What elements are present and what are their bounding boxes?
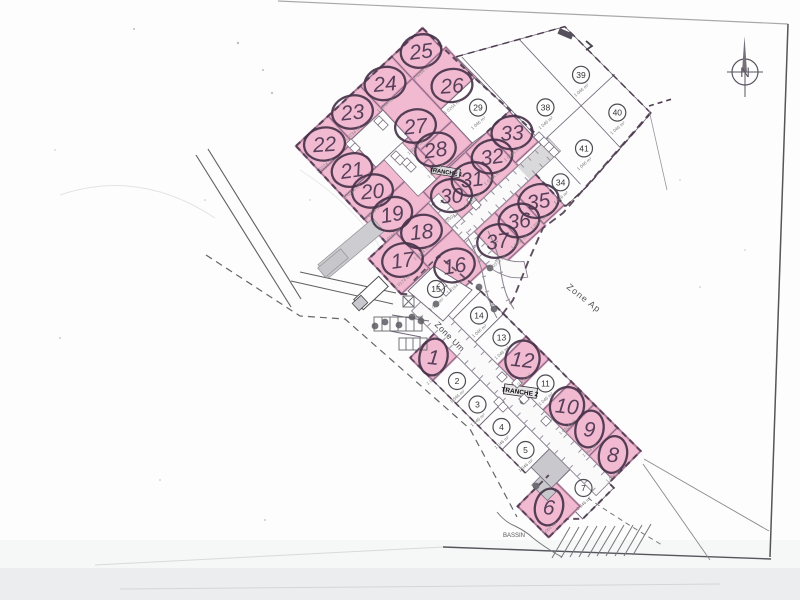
svg-text:13: 13 — [497, 333, 507, 343]
svg-text:29: 29 — [473, 103, 483, 113]
svg-text:37: 37 — [484, 229, 512, 255]
svg-text:17: 17 — [389, 248, 417, 274]
svg-text:36: 36 — [506, 209, 532, 235]
svg-text:18: 18 — [409, 220, 435, 245]
svg-text:26: 26 — [439, 74, 465, 99]
svg-text:15: 15 — [431, 284, 441, 294]
svg-text:24: 24 — [371, 72, 397, 97]
svg-text:7: 7 — [581, 483, 586, 493]
svg-text:16: 16 — [441, 253, 468, 279]
svg-text:33: 33 — [500, 121, 525, 145]
svg-text:25: 25 — [407, 39, 434, 65]
svg-text:28: 28 — [421, 137, 449, 163]
svg-text:39: 39 — [576, 70, 586, 80]
svg-text:34: 34 — [556, 177, 566, 187]
svg-text:23: 23 — [339, 100, 366, 125]
svg-text:10: 10 — [554, 394, 580, 419]
svg-text:N: N — [740, 65, 750, 80]
svg-text:3: 3 — [475, 400, 480, 410]
svg-text:11: 11 — [541, 379, 550, 389]
svg-text:4: 4 — [499, 422, 504, 432]
svg-text:1: 1 — [426, 346, 440, 370]
svg-text:40: 40 — [613, 108, 623, 118]
svg-text:41: 41 — [579, 143, 589, 153]
svg-text:BASSIN: BASSIN — [503, 533, 525, 539]
svg-text:5: 5 — [523, 445, 528, 455]
svg-text:12: 12 — [510, 348, 536, 373]
svg-text:22: 22 — [311, 133, 337, 158]
svg-text:21: 21 — [338, 158, 365, 184]
svg-text:2: 2 — [455, 376, 460, 386]
svg-text:14: 14 — [474, 311, 484, 321]
svg-text:38: 38 — [541, 102, 551, 112]
